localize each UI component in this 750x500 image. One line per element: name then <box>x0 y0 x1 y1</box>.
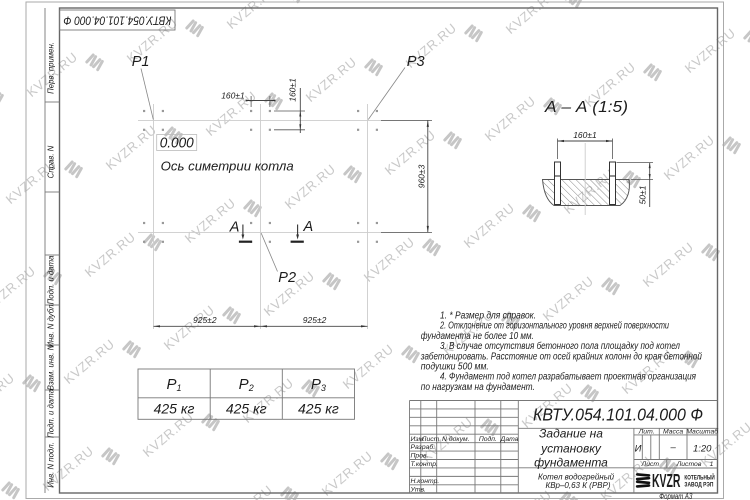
svg-text:Котел водогрейный: Котел водогрейный <box>538 472 615 481</box>
svg-text:Подп. и дата: Подп. и дата <box>47 388 56 437</box>
svg-text:425 кг: 425 кг <box>298 401 339 417</box>
svg-text:425 кг: 425 кг <box>154 401 195 417</box>
svg-text:0.000: 0.000 <box>160 136 194 152</box>
svg-text:1: 1 <box>710 461 714 468</box>
svg-text:Лист: Лист <box>641 461 660 468</box>
svg-text:KVZR: KVZR <box>652 470 681 491</box>
svg-text:160±1: 160±1 <box>221 90 245 100</box>
svg-text:P2: P2 <box>278 270 296 286</box>
svg-text:Подп.: Подп. <box>479 435 497 443</box>
svg-text:A: A <box>303 219 314 235</box>
svg-text:Инв. N подл.: Инв. N подл. <box>47 442 56 488</box>
svg-text:Инв. N дубл.: Инв. N дубл. <box>47 302 56 347</box>
svg-text:50±1: 50±1 <box>638 185 648 204</box>
svg-text:P3: P3 <box>407 54 425 70</box>
svg-text:КВр–0,63 К (РВР): КВр–0,63 К (РВР) <box>545 481 610 490</box>
svg-text:Ось симетрии котла: Ось симетрии котла <box>161 159 294 174</box>
svg-text:425 кг: 425 кг <box>226 401 267 417</box>
svg-text:фундамента: фундамента <box>534 455 608 469</box>
svg-text:Перв. примен.: Перв. примен. <box>47 42 56 94</box>
svg-text:925±2: 925±2 <box>303 315 327 325</box>
svg-text:Утв.: Утв. <box>410 486 427 493</box>
svg-text:Т.контр.: Т.контр. <box>411 461 439 468</box>
svg-text:КОТЕЛЬНЫЙ: КОТЕЛЬНЫЙ <box>684 473 715 481</box>
svg-text:925±2: 925±2 <box>193 315 217 325</box>
svg-text:по нагрузкам на фундамент.: по нагрузкам на фундамент. <box>421 382 535 393</box>
svg-text:Задание на: Задание на <box>539 427 603 441</box>
svg-text:Пров.: Пров. <box>411 453 429 460</box>
svg-text:КВТУ.054.101.04.000 Ф: КВТУ.054.101.04.000 Ф <box>533 405 703 425</box>
svg-text:Взам. инв. N: Взам. инв. N <box>47 344 56 390</box>
svg-text:Формат А3: Формат А3 <box>659 492 692 500</box>
svg-text:Н.контр.: Н.контр. <box>411 478 440 485</box>
svg-text:КВТУ.054.101.04.000 Ф: КВТУ.054.101.04.000 Ф <box>63 14 171 28</box>
svg-text:1:20: 1:20 <box>693 444 712 455</box>
svg-text:ЗАВОД РЭП: ЗАВОД РЭП <box>684 481 713 488</box>
svg-text:Справ. N: Справ. N <box>47 145 56 178</box>
svg-text:Дата: Дата <box>500 436 519 443</box>
svg-text:N докум.: N докум. <box>442 435 470 443</box>
svg-text:A: A <box>229 220 240 236</box>
svg-text:Листов: Листов <box>676 461 702 468</box>
svg-text:Подп. и дата: Подп. и дата <box>47 255 56 304</box>
svg-text:160±1: 160±1 <box>288 78 298 102</box>
svg-text:И: И <box>635 444 642 455</box>
svg-text:Разраб.: Разраб. <box>411 443 436 451</box>
svg-text:P1: P1 <box>132 54 150 70</box>
svg-text:160±1: 160±1 <box>573 130 597 140</box>
svg-text:А – А (1:5): А – А (1:5) <box>544 99 628 116</box>
svg-text:установку: установку <box>540 442 602 456</box>
svg-text:Масштаб: Масштаб <box>686 428 719 436</box>
svg-text:Масса: Масса <box>663 429 683 436</box>
svg-text:960±3: 960±3 <box>417 164 427 188</box>
svg-text:–: – <box>669 442 676 453</box>
svg-text:Лит.: Лит. <box>638 429 655 436</box>
svg-text:Лист: Лист <box>421 436 440 443</box>
